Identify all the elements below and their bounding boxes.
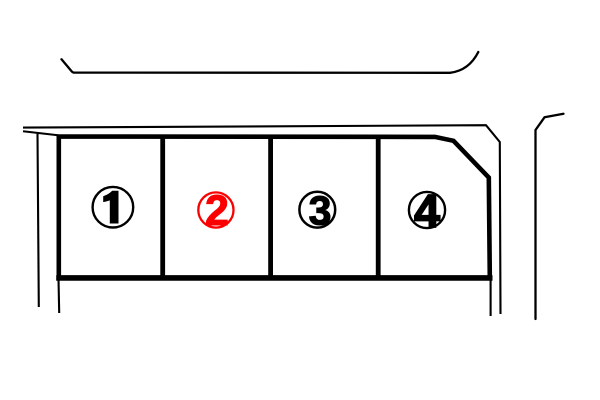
svg-text:2: 2 <box>205 187 229 235</box>
svg-text:3: 3 <box>309 188 332 234</box>
svg-text:4: 4 <box>414 185 440 237</box>
